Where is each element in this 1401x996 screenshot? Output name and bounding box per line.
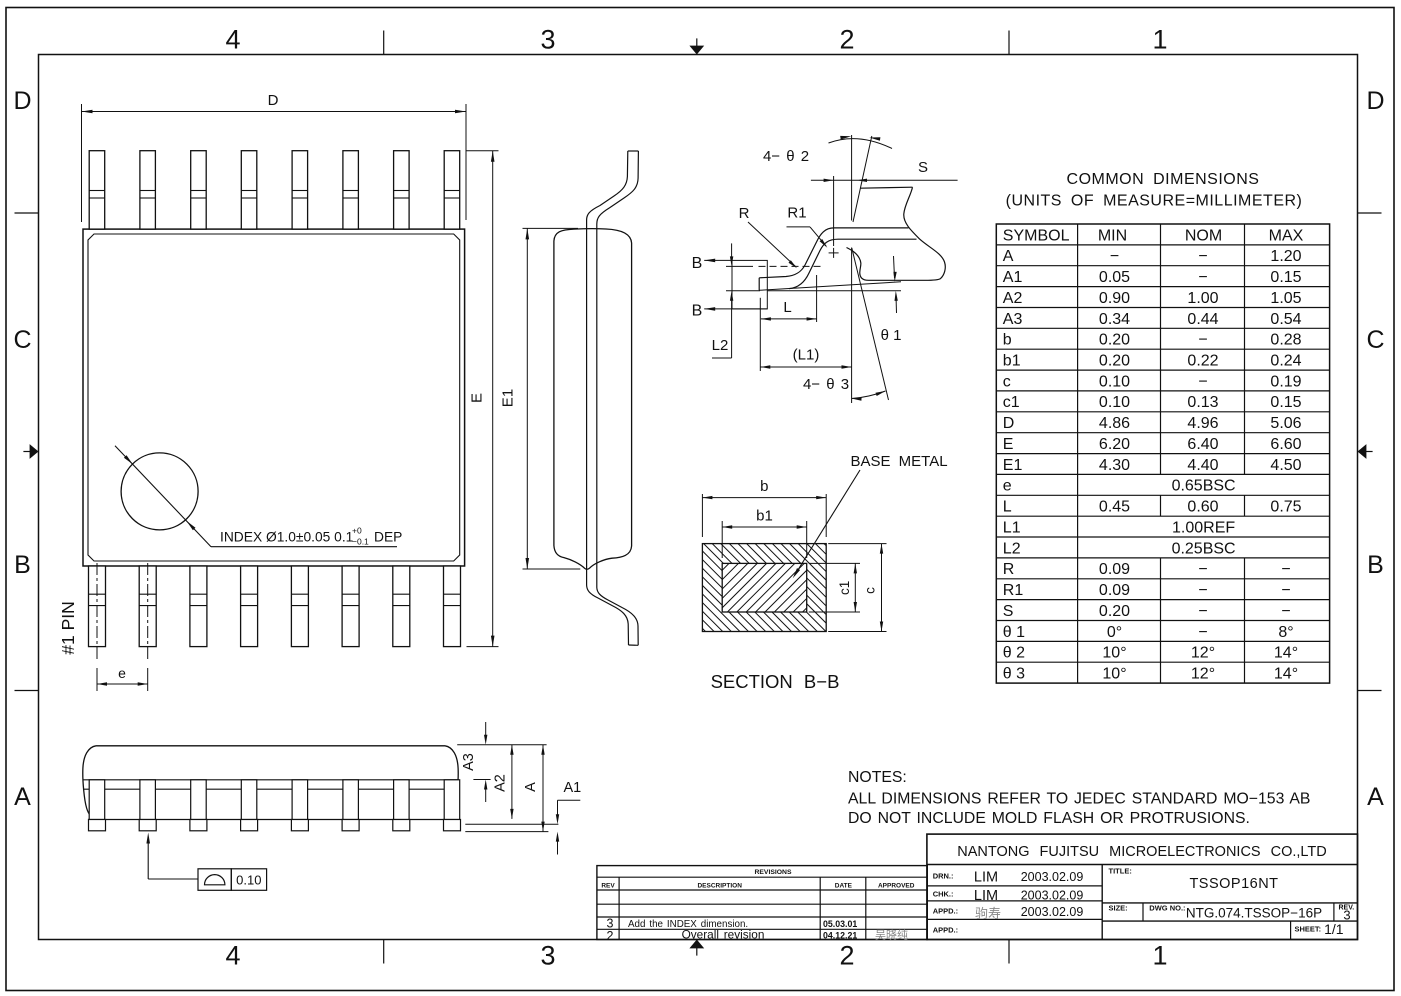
svg-text:A1: A1 [1003,269,1023,286]
svg-text:E: E [469,393,486,403]
svg-text:SYMBOL: SYMBOL [1003,227,1070,244]
svg-text:L: L [1003,499,1012,516]
svg-text:D: D [1003,415,1015,432]
svg-text:b1: b1 [1003,353,1021,370]
svg-text:APPROVED: APPROVED [878,882,915,889]
svg-text:DESCRIPTION: DESCRIPTION [697,882,742,889]
svg-text:c1: c1 [1003,394,1020,411]
svg-text:1: 1 [1152,941,1167,971]
svg-text:θ 1: θ 1 [881,327,902,344]
svg-text:4− θ 2: 4− θ 2 [763,148,809,165]
svg-text:A3: A3 [461,753,477,771]
svg-text:B: B [692,255,703,272]
svg-text:2: 2 [839,25,854,55]
svg-text:−: − [1198,603,1207,620]
svg-text:4.40: 4.40 [1187,457,1218,474]
svg-text:0.19: 0.19 [1270,373,1301,390]
svg-text:#1 PIN: #1 PIN [58,601,78,655]
svg-text:0.13: 0.13 [1187,394,1218,411]
svg-text:0.44: 0.44 [1187,311,1218,328]
svg-text:S: S [918,159,928,176]
svg-text:4.50: 4.50 [1270,457,1301,474]
svg-text:e: e [118,665,126,681]
svg-text:B: B [1367,551,1384,579]
svg-text:NOM: NOM [1185,227,1222,244]
svg-text:−: − [1198,332,1207,349]
svg-text:COMMON DIMENSIONS: COMMON DIMENSIONS [1067,171,1260,188]
svg-text:A: A [1003,248,1014,265]
svg-text:0.75: 0.75 [1270,499,1301,516]
svg-text:0.28: 0.28 [1270,332,1301,349]
svg-text:L2: L2 [1003,540,1021,557]
svg-text:0.10: 0.10 [1099,394,1130,411]
svg-text:14°: 14° [1274,666,1298,683]
svg-text:b: b [1003,332,1012,349]
svg-text:0.24: 0.24 [1270,353,1301,370]
svg-text:θ 1: θ 1 [1003,624,1025,641]
svg-text:−0.1: −0.1 [352,537,369,547]
svg-text:吴晓纯: 吴晓纯 [875,929,908,942]
svg-text:A2: A2 [1003,290,1023,307]
svg-text:0.22: 0.22 [1187,353,1218,370]
svg-text:0.60: 0.60 [1187,499,1218,516]
svg-text:R1: R1 [1003,582,1024,599]
svg-text:0.54: 0.54 [1270,311,1301,328]
svg-text:1: 1 [1152,25,1167,55]
svg-text:b1: b1 [756,508,773,525]
svg-text:S: S [1003,603,1014,620]
svg-text:L1: L1 [1003,520,1021,537]
svg-text:D: D [1366,87,1384,115]
svg-text:APPD.:: APPD.: [933,907,958,916]
svg-text:−: − [1198,373,1207,390]
svg-text:E1: E1 [500,389,517,407]
svg-text:REVISIONS: REVISIONS [754,869,791,876]
svg-text:04.12.21: 04.12.21 [823,931,857,941]
svg-text:0.15: 0.15 [1270,394,1301,411]
svg-text:12°: 12° [1191,666,1215,683]
svg-text:e: e [1003,478,1012,495]
svg-text:MIN: MIN [1098,227,1127,244]
svg-text:R: R [739,205,750,222]
svg-text:c: c [1003,373,1011,390]
svg-text:1.00REF: 1.00REF [1172,520,1235,537]
svg-text:SHEET:: SHEET: [1295,925,1322,934]
svg-text:(L1): (L1) [793,347,820,364]
svg-text:0.20: 0.20 [1099,332,1130,349]
svg-text:3: 3 [540,25,555,55]
svg-text:−: − [1198,624,1207,641]
svg-text:3: 3 [540,941,555,971]
svg-text:CHK.:: CHK.: [933,890,954,899]
svg-text:0.10: 0.10 [1099,373,1130,390]
svg-text:E: E [1003,436,1014,453]
svg-text:A3: A3 [1003,311,1023,328]
svg-text:R1: R1 [787,205,806,222]
svg-text:INDEX Ø1.0±0.05 0.1: INDEX Ø1.0±0.05 0.1 [220,530,353,545]
svg-text:2: 2 [607,929,614,943]
svg-text:B: B [692,303,703,320]
svg-text:R: R [1003,561,1015,578]
svg-text:1.20: 1.20 [1270,248,1301,265]
svg-text:2003.02.09: 2003.02.09 [1021,905,1084,919]
svg-text:−: − [1198,269,1207,286]
svg-text:3: 3 [1343,908,1350,923]
svg-text:4: 4 [225,25,240,55]
svg-text:12°: 12° [1191,645,1215,662]
svg-text:BASE METAL: BASE METAL [850,453,947,470]
svg-text:L: L [783,299,791,316]
svg-text:SIZE:: SIZE: [1109,904,1128,913]
svg-text:c1: c1 [837,581,852,595]
svg-text:10°: 10° [1102,645,1126,662]
svg-text:DATE: DATE [835,882,853,889]
svg-text:6.60: 6.60 [1270,436,1301,453]
svg-text:D: D [13,87,31,115]
svg-text:0.34: 0.34 [1099,311,1130,328]
svg-text:4− θ 3: 4− θ 3 [803,376,849,393]
svg-text:B: B [14,551,31,579]
svg-text:1.05: 1.05 [1270,290,1301,307]
svg-text:θ 3: θ 3 [1003,666,1025,683]
svg-text:2003.02.09: 2003.02.09 [1021,870,1084,884]
svg-text:D: D [268,92,279,109]
svg-text:SECTION B−B: SECTION B−B [711,671,840,692]
svg-text:−: − [1110,248,1119,265]
svg-text:8°: 8° [1278,624,1293,641]
svg-text:DO NOT INCLUDE MOLD FLASH OR P: DO NOT INCLUDE MOLD FLASH OR PROTRUSIONS… [848,810,1250,827]
svg-text:−: − [1198,582,1207,599]
svg-text:b: b [760,478,768,495]
svg-text:L2: L2 [712,337,729,354]
svg-text:C: C [13,326,31,354]
svg-text:TITLE:: TITLE: [1109,867,1132,876]
svg-text:E1: E1 [1003,457,1023,474]
svg-text:0.45: 0.45 [1099,499,1130,516]
svg-text:0°: 0° [1107,624,1122,641]
svg-text:0.05: 0.05 [1099,269,1130,286]
svg-text:−: − [1281,582,1290,599]
svg-text:1/1: 1/1 [1324,921,1344,937]
svg-text:NANTONG FUJITSU MICROELECTRONI: NANTONG FUJITSU MICROELECTRONICS CO.,LTD [957,844,1327,860]
svg-text:0.65BSC: 0.65BSC [1172,478,1236,495]
svg-text:REV: REV [601,882,615,889]
svg-text:+0: +0 [352,526,362,536]
svg-text:4.96: 4.96 [1187,415,1218,432]
svg-text:A1: A1 [564,780,582,796]
svg-text:−: − [1281,561,1290,578]
svg-text:0.90: 0.90 [1099,290,1130,307]
svg-text:A: A [523,782,539,792]
svg-text:A: A [1367,783,1384,811]
svg-text:05.03.01: 05.03.01 [823,919,857,929]
svg-text:4.30: 4.30 [1099,457,1130,474]
svg-text:1.00: 1.00 [1187,290,1218,307]
svg-text:5.06: 5.06 [1270,415,1301,432]
svg-text:−: − [1198,561,1207,578]
svg-text:0.09: 0.09 [1099,561,1130,578]
svg-text:C: C [1366,326,1384,354]
svg-text:(UNITS OF MEASURE=MILLIMETER): (UNITS OF MEASURE=MILLIMETER) [1006,193,1303,210]
svg-text:MAX: MAX [1269,227,1304,244]
svg-text:4: 4 [225,941,240,971]
svg-text:ALL DIMENSIONS REFER TO JEDEC: ALL DIMENSIONS REFER TO JEDEC STANDARD M… [848,791,1310,808]
svg-text:LIM: LIM [974,888,998,904]
svg-text:APPD.:: APPD.: [933,926,958,935]
svg-text:NTG.074.TSSOP−16P: NTG.074.TSSOP−16P [1186,906,1322,921]
svg-text:DEP: DEP [374,530,402,545]
svg-text:0.10: 0.10 [236,873,261,888]
svg-text:6.20: 6.20 [1099,436,1130,453]
svg-text:4.86: 4.86 [1099,415,1130,432]
svg-text:10°: 10° [1102,666,1126,683]
svg-text:Overall revision: Overall revision [682,928,765,942]
svg-text:0.09: 0.09 [1099,582,1130,599]
svg-text:2: 2 [839,941,854,971]
svg-text:DWG NO.:: DWG NO.: [1149,904,1185,913]
svg-text:DRN.:: DRN.: [933,872,954,881]
svg-text:A2: A2 [492,774,508,792]
svg-text:0.25BSC: 0.25BSC [1172,540,1236,557]
svg-text:6.40: 6.40 [1187,436,1218,453]
svg-text:−: − [1281,603,1290,620]
svg-text:LIM: LIM [974,870,998,886]
svg-text:2003.02.09: 2003.02.09 [1021,889,1084,903]
svg-text:θ 2: θ 2 [1003,645,1025,662]
svg-text:A: A [14,783,31,811]
svg-text:驹寿: 驹寿 [975,906,1001,921]
svg-text:−: − [1198,248,1207,265]
svg-text:0.15: 0.15 [1270,269,1301,286]
svg-text:NOTES:: NOTES: [848,769,907,786]
svg-text:TSSOP16NT: TSSOP16NT [1189,876,1278,892]
svg-text:c: c [863,587,878,594]
svg-text:0.20: 0.20 [1099,353,1130,370]
svg-text:0.20: 0.20 [1099,603,1130,620]
svg-text:14°: 14° [1274,645,1298,662]
